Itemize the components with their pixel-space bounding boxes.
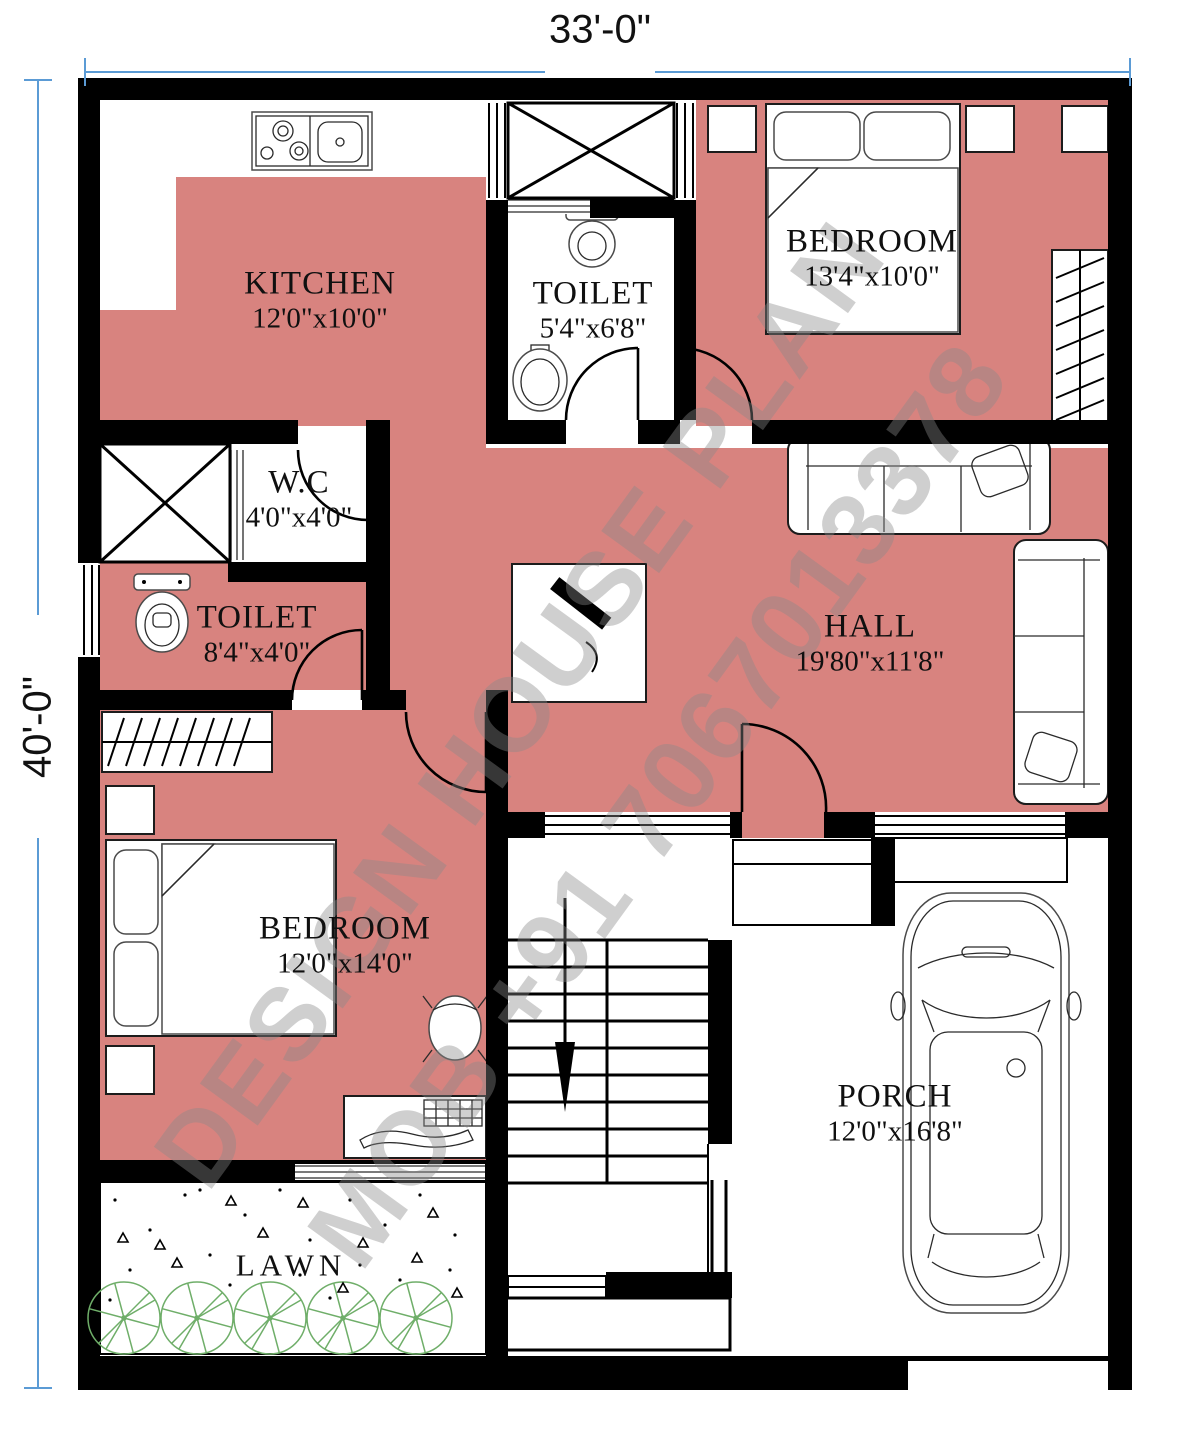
window-hall-bottom-left [545,812,730,838]
tree-icon [380,1282,452,1354]
dimension-label-left: 40'-0" [16,668,61,786]
window-toilet-top [508,198,590,214]
window-bedroom-bottom [295,1164,485,1180]
sofa-icon-vertical [1014,540,1108,804]
shaft-left [100,444,230,562]
wall-box-icon [1062,106,1108,152]
nightstand-icon [106,1046,154,1094]
door-arc-toilet-top [566,348,638,420]
porch-entry-step [733,840,873,925]
nightstand-icon [966,106,1014,152]
nightstand-icon [106,786,154,834]
window-shaft-top-left [486,100,508,200]
kitchen-label: KITCHEN 12'0"x10'0" [244,265,396,334]
kitchen-sink-icon [252,112,372,170]
lawn-label: LAWN [236,1249,347,1284]
nightstand-icon [708,106,756,152]
staircase [487,898,732,1350]
stair-arrow-icon [555,898,575,1112]
bedroom-top-label: BEDROOM 13'4"x10'0" [786,223,958,292]
window-shaft-top-right [674,100,696,200]
toilet-top-label: TOILET 5'4"x6'8" [533,275,654,344]
wc-label: W.C 4'0"x4'0" [246,464,353,533]
toilet-left-label: TOILET 8'4"x4'0" [197,599,318,668]
desk-icon [344,1096,486,1158]
toilet-commode-left-icon [134,574,190,652]
tv-unit-icon [512,564,646,702]
shaft-top [508,103,674,198]
window-hall-bottom-right [875,812,1065,838]
bedroom-bottom-label: BEDROOM 12'0"x14'0" [259,910,431,979]
bed-icon-top [766,104,960,334]
floor-plan-drawing [0,0,1200,1441]
tree-icon [161,1282,233,1354]
porch-area [733,838,1081,1313]
tree-icon [307,1282,379,1354]
porch-window-sill [875,838,1067,882]
dimension-label-top: 33'-0" [541,8,659,53]
washbasin-icon [513,345,567,411]
wardrobe-icon-top [1052,250,1108,424]
hall-label: HALL 19'80"x11'8" [795,608,944,677]
porch-label: PORCH 12'0"x16'8" [827,1078,963,1147]
tree-icon [234,1282,306,1354]
floor-plan-canvas: DESIGN HOUSE PLAN MOB +91 7067013378 KIT… [0,0,1200,1441]
wardrobe-icon-bottom [102,712,272,772]
sofa-icon-horizontal [788,438,1050,534]
window-left-wall [78,563,100,657]
